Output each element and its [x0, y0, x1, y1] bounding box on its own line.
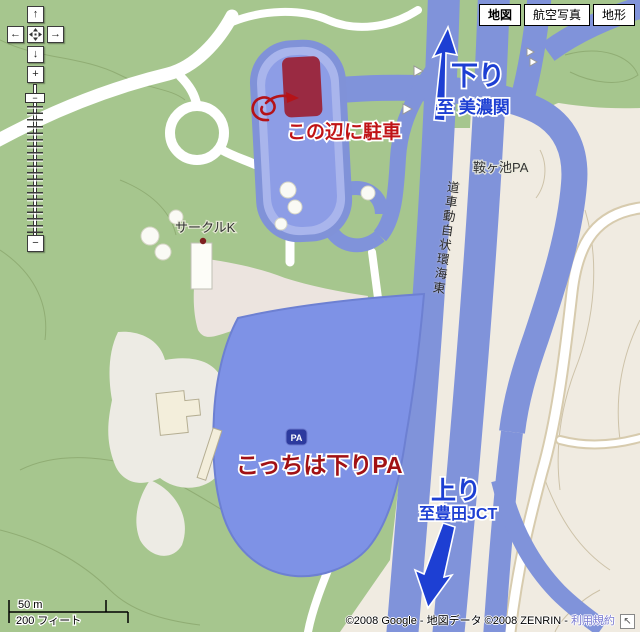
store-marker-dot[interactable] [200, 238, 206, 244]
tree-circle [361, 186, 375, 200]
attribution: ©2008 Google - 地図データ ©2008 ZENRIN - 利用規約 [346, 612, 615, 628]
scale-metric-label: 50 m [18, 599, 42, 611]
down-destination-label: 至 美濃関 [437, 97, 510, 117]
svg-text:PA: PA [291, 433, 303, 443]
map-viewport[interactable]: PA 鞍ヶ池PA サークルK この辺に駐車 こっちは下りPA 下り 至 美濃関 … [0, 0, 640, 632]
zoom-slider-handle[interactable]: − [25, 93, 45, 103]
store-label: サークルK [175, 220, 236, 235]
northwest-arrow-icon: ↖ [623, 616, 631, 627]
down-pa-annotation: こっちは下りPA [236, 452, 403, 478]
park-here-annotation: この辺に駐車 [287, 120, 401, 143]
pan-up-button[interactable]: ↑ [27, 6, 44, 23]
map-canvas[interactable]: PA 鞍ヶ池PA サークルK この辺に駐車 こっちは下りPA 下り 至 美濃関 … [0, 0, 640, 632]
pan-right-button[interactable]: → [47, 26, 64, 43]
map-type-bar: 地図 航空写真 地形 [479, 4, 635, 26]
pan-down-button[interactable]: ↓ [27, 46, 44, 63]
pan-left-button[interactable]: ← [7, 26, 24, 43]
pa-badge-icon: PA [286, 429, 307, 445]
pa-name-label: 鞍ヶ池PA [473, 160, 529, 175]
scale-imperial-label: 200 フィート [16, 615, 81, 627]
circle-k-building [191, 243, 212, 289]
scale-bar: 50 m 200 フィート [6, 592, 146, 630]
up-destination-label: 至豊田JCT [419, 504, 497, 523]
pan-center-button[interactable] [27, 26, 44, 43]
map-type-map-button[interactable]: 地図 [479, 4, 521, 26]
map-type-terrain-button[interactable]: 地形 [593, 4, 635, 26]
pan-center-icon [29, 28, 42, 41]
down-direction-label: 下り [451, 61, 505, 91]
zoom-in-button[interactable]: + [27, 66, 44, 83]
zoom-out-button[interactable]: − [27, 235, 44, 252]
copyright-text: ©2008 Google - 地図データ ©2008 ZENRIN - [346, 615, 571, 627]
map-type-satellite-button[interactable]: 航空写真 [524, 4, 590, 26]
zoom-slider-ticks [27, 106, 43, 233]
terms-link[interactable]: 利用規約 [571, 615, 615, 627]
parking-spot-highlight [282, 56, 323, 118]
corner-arrow-button[interactable]: ↖ [620, 614, 635, 629]
up-direction-label: 上り [431, 477, 481, 505]
